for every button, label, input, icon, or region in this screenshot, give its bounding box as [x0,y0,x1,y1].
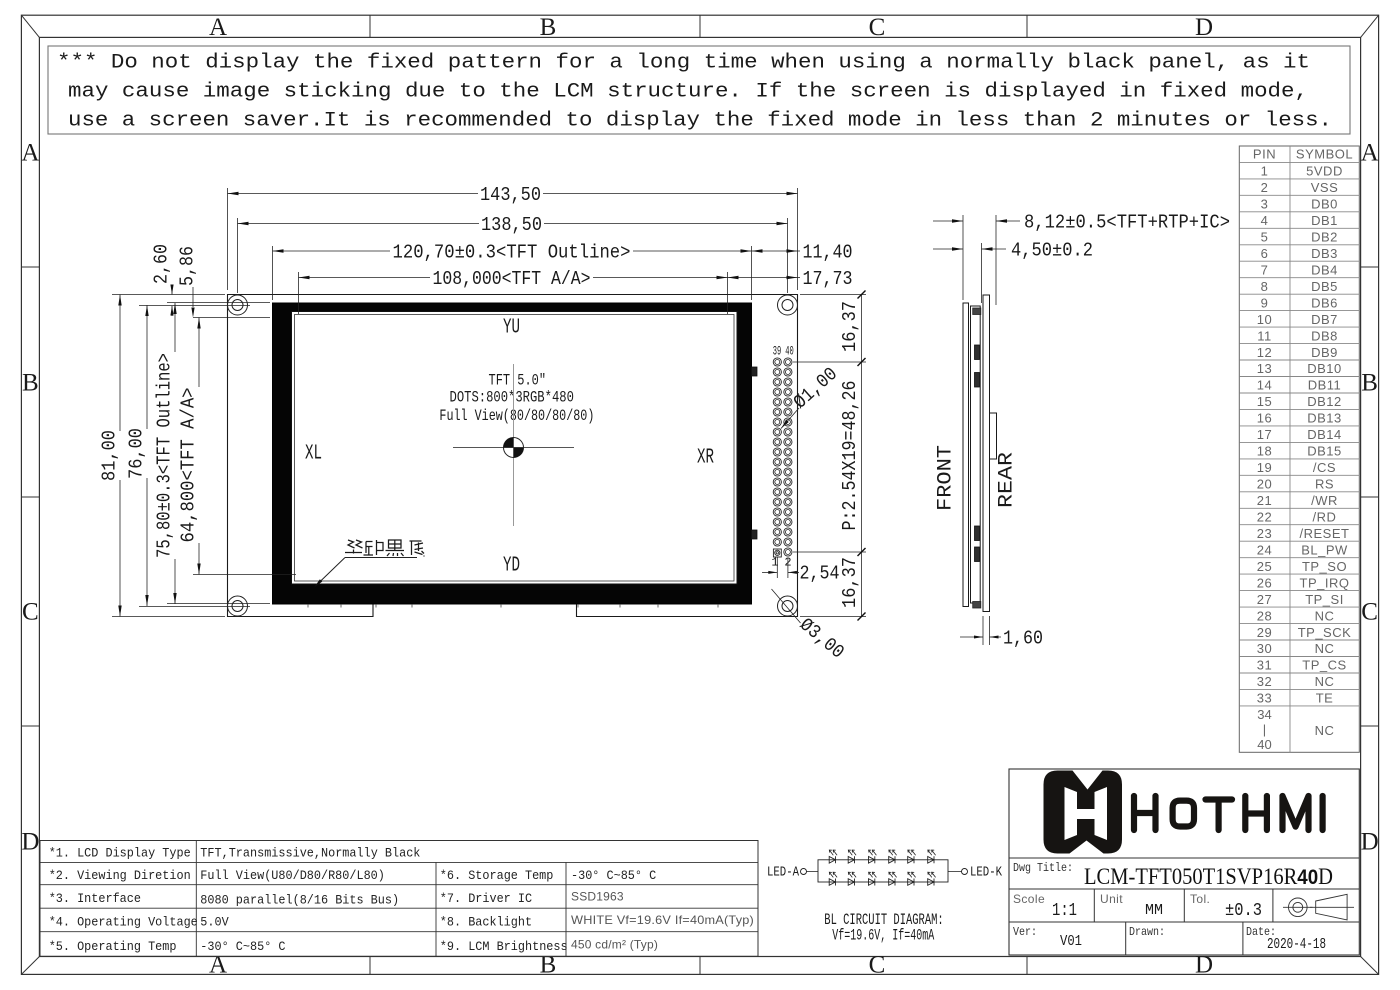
svg-text:40: 40 [1257,737,1271,752]
svg-text:FRONT: FRONT [935,445,958,511]
svg-text:Ver:: Ver: [1013,925,1037,939]
svg-text:MM: MM [1145,902,1163,919]
svg-text:25: 25 [1257,559,1272,574]
svg-text:V01: V01 [1060,933,1082,950]
svg-text:/CS: /CS [1313,460,1336,475]
svg-text:16,37: 16,37 [839,557,861,608]
svg-text:XL: XL [305,443,322,466]
svg-text:DB2: DB2 [1311,230,1338,245]
svg-text:Tol.: Tol. [1190,892,1210,906]
svg-text:SSD1963: SSD1963 [571,890,624,904]
svg-text:A: A [209,952,227,979]
svg-text:13: 13 [1257,361,1272,376]
svg-text:DB15: DB15 [1307,444,1342,459]
svg-text:B: B [22,370,39,397]
svg-text:DB13: DB13 [1307,411,1342,426]
svg-text:NC: NC [1315,641,1335,656]
svg-text:22: 22 [1257,510,1272,525]
svg-text:DB7: DB7 [1311,312,1338,327]
svg-text:23: 23 [1257,526,1272,541]
svg-text:143,50: 143,50 [480,184,541,206]
svg-text:Unit: Unit [1100,892,1123,906]
svg-text:6: 6 [1261,246,1269,261]
svg-text:C: C [22,599,39,626]
svg-text:2: 2 [1261,180,1269,195]
svg-text:Vf=19.6V, If=40mA: Vf=19.6V, If=40mA [832,927,934,945]
svg-text:1:1: 1:1 [1052,901,1077,921]
svg-text:138,50: 138,50 [481,214,542,236]
svg-text:76,00: 76,00 [126,428,148,479]
svg-text:A: A [21,140,39,167]
svg-text:5: 5 [1261,230,1269,245]
svg-text:Dwg Title:: Dwg Title: [1013,861,1073,875]
svg-text:/RESET: /RESET [1300,526,1350,541]
svg-text:12: 12 [1257,345,1272,360]
svg-text:NC: NC [1315,608,1335,623]
svg-text:YD: YD [503,555,520,578]
svg-text:64,800<TFT A/A>: 64,800<TFT A/A> [178,388,200,543]
svg-text:450 cd/m² (Typ): 450 cd/m² (Typ) [571,938,658,952]
svg-text:75,80±0.3<TFT Outline>: 75,80±0.3<TFT Outline> [154,353,176,558]
svg-text:-30° C~85° C: -30° C~85° C [571,869,656,883]
svg-text:-30° C~85° C: -30° C~85° C [200,940,285,954]
svg-text:LED-A: LED-A [767,865,799,881]
svg-text:TP_CS: TP_CS [1302,658,1346,673]
svg-text:B: B [540,952,557,979]
svg-text:D: D [1361,829,1379,856]
svg-text:DB0: DB0 [1311,197,1338,212]
svg-text:15: 15 [1257,394,1272,409]
svg-text:DB14: DB14 [1307,427,1342,442]
svg-text:*7. Driver IC: *7. Driver IC [440,892,532,906]
svg-text:Full View(U80/D80/R80/L80): Full View(U80/D80/R80/L80) [200,869,385,883]
svg-text:32: 32 [1257,674,1272,689]
svg-text:PIN: PIN [1253,147,1276,162]
svg-text:TE: TE [1316,691,1334,706]
svg-text:DB8: DB8 [1311,328,1338,343]
svg-text:8: 8 [1261,279,1269,294]
svg-text:DB10: DB10 [1307,361,1342,376]
svg-text:2,60: 2,60 [151,244,173,284]
svg-text:30: 30 [1257,641,1272,656]
svg-text:8080 parallel(8/16 Bits Bus): 8080 parallel(8/16 Bits Bus) [200,894,399,908]
svg-text:17,73: 17,73 [803,268,853,290]
svg-text:*8. Backlight: *8. Backlight [440,916,532,930]
svg-text:24: 24 [1257,542,1272,557]
svg-text:YU: YU [503,317,520,340]
svg-text:1,60: 1,60 [1003,628,1043,650]
svg-text:LED-K: LED-K [970,865,1002,881]
svg-text:21: 21 [1257,493,1272,508]
svg-text:20: 20 [1257,477,1272,492]
svg-text:TP_IRQ: TP_IRQ [1300,575,1350,590]
svg-text:8,12±0.5<TFT+RTP+IC>: 8,12±0.5<TFT+RTP+IC> [1024,212,1230,234]
svg-text:DB6: DB6 [1311,295,1338,310]
svg-text:DB11: DB11 [1308,378,1342,393]
svg-text:NC: NC [1315,723,1335,738]
svg-text:D: D [1195,14,1213,41]
svg-text:TP_SO: TP_SO [1302,559,1347,574]
svg-text:4: 4 [1261,213,1269,228]
svg-text:REAR: REAR [996,452,1019,508]
svg-text:B: B [1361,370,1378,397]
svg-text:±0.3: ±0.3 [1225,901,1262,921]
svg-text:*5. Operating Temp: *5. Operating Temp [49,940,177,954]
svg-text:/RD: /RD [1313,510,1337,525]
svg-text:BL_PW: BL_PW [1301,542,1348,557]
svg-text:Drawn:: Drawn: [1129,925,1165,939]
svg-text:/WR: /WR [1311,493,1338,508]
svg-text:*9. LCM Brightness: *9. LCM Brightness [440,940,568,954]
svg-text:NC: NC [1315,674,1335,689]
svg-text:TP_SCK: TP_SCK [1298,625,1352,640]
svg-text:*1. LCD Display Type: *1. LCD Display Type [49,847,191,861]
svg-text:16: 16 [1257,411,1272,426]
svg-text:XR: XR [697,447,714,470]
svg-text:26: 26 [1257,575,1272,590]
svg-text:use a screen saver.It is recom: use a screen saver.It is recommended to … [68,110,1332,133]
svg-text:5,86: 5,86 [177,246,199,286]
svg-text:34: 34 [1257,707,1271,722]
svg-text:*** Do not display the fixed p: *** Do not display the fixed pattern for… [57,52,1310,75]
svg-text:VSS: VSS [1311,180,1339,195]
svg-text:RS: RS [1315,477,1334,492]
svg-text:7: 7 [1261,262,1269,277]
svg-text:2,54: 2,54 [800,563,840,585]
svg-text:TP_SI: TP_SI [1305,592,1344,607]
svg-text:D: D [21,829,39,856]
svg-text:P:2.54X19=48,26: P:2.54X19=48,26 [839,381,861,531]
svg-text:LCM-TFT050T1SVP16R40D: LCM-TFT050T1SVP16R40D [1084,864,1333,889]
svg-text:120,70±0.3<TFT Outline>: 120,70±0.3<TFT Outline> [393,242,631,264]
svg-text:DB4: DB4 [1311,262,1338,277]
svg-text:A: A [1361,140,1379,167]
svg-text:DB3: DB3 [1311,246,1338,261]
svg-text:27: 27 [1257,592,1272,607]
svg-text:Full View(80/80/80/80): Full View(80/80/80/80) [439,407,594,425]
svg-text:14: 14 [1257,378,1272,393]
svg-text:TFT,Transmissive,Normally Blac: TFT,Transmissive,Normally Black [200,847,420,861]
svg-text:33: 33 [1257,691,1272,706]
svg-text:B: B [540,14,557,41]
svg-text:17: 17 [1257,427,1272,442]
svg-text:39: 39 [773,344,782,359]
svg-text:1: 1 [1261,164,1269,179]
svg-text:may cause image sticking due t: may cause image sticking due to the LCM … [68,81,1308,104]
svg-text:4,50±0.2: 4,50±0.2 [1011,240,1093,262]
svg-text:5.0V: 5.0V [200,916,229,930]
svg-text:TFT 5.0": TFT 5.0" [489,372,547,390]
svg-text:19: 19 [1257,460,1272,475]
svg-text:11: 11 [1257,328,1272,343]
svg-text:DB5: DB5 [1311,279,1338,294]
svg-text:DOTS:800*3RGB*480: DOTS:800*3RGB*480 [450,389,574,407]
svg-text:Scole: Scole [1013,892,1045,906]
svg-text:C: C [869,952,886,979]
svg-text:16,37: 16,37 [839,301,861,352]
svg-text:*3. Interface: *3. Interface [49,892,141,906]
svg-text:29: 29 [1257,625,1272,640]
svg-text:*6. Storage Temp: *6. Storage Temp [440,869,554,883]
svg-text:WHITE Vf=19.6V If=40mA(Typ): WHITE Vf=19.6V If=40mA(Typ) [571,913,754,927]
svg-text:40: 40 [785,344,794,359]
svg-text:28: 28 [1257,608,1272,623]
svg-text:108,000<TFT A/A>: 108,000<TFT A/A> [433,268,591,290]
svg-text:C: C [1361,599,1378,626]
svg-text:DB1: DB1 [1311,213,1338,228]
svg-text:3: 3 [1261,197,1269,212]
svg-text:9: 9 [1261,295,1269,310]
svg-text:10: 10 [1257,312,1272,327]
svg-text:11,40: 11,40 [803,242,853,264]
svg-text:5VDD: 5VDD [1306,164,1343,179]
svg-text:DB12: DB12 [1307,394,1342,409]
svg-text:2020-4-18: 2020-4-18 [1267,936,1326,953]
svg-text:DB9: DB9 [1311,345,1338,360]
svg-text:|: | [1263,722,1266,737]
svg-text:81,00: 81,00 [99,430,121,481]
svg-text:A: A [209,14,227,41]
svg-text:*2. Viewing Diretion: *2. Viewing Diretion [49,869,191,883]
svg-text:31: 31 [1257,658,1272,673]
svg-text:SYMBOL: SYMBOL [1296,147,1353,162]
svg-text:18: 18 [1257,444,1272,459]
svg-text:C: C [869,14,886,41]
svg-text:*4. Operating Voltage: *4. Operating Voltage [49,916,198,930]
